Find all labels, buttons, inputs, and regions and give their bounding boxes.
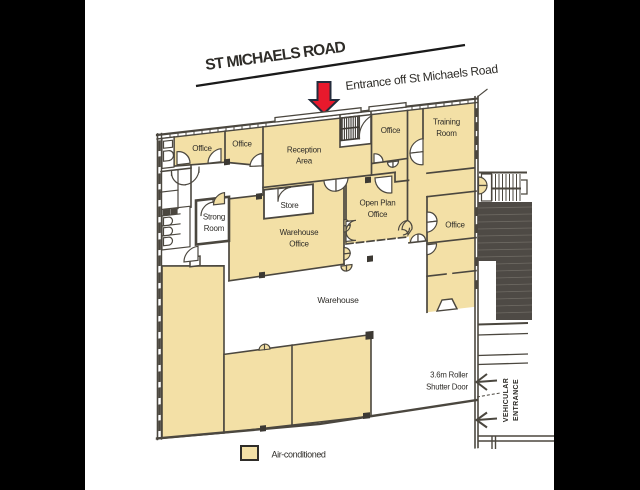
svg-text:Warehouse: Warehouse <box>317 295 359 305</box>
svg-text:Office: Office <box>381 126 401 135</box>
svg-text:Room: Room <box>436 129 457 138</box>
svg-text:Air-conditioned: Air-conditioned <box>272 450 326 460</box>
svg-text:Store: Store <box>280 201 299 210</box>
svg-text:Open Plan: Open Plan <box>359 199 395 208</box>
svg-text:Room: Room <box>204 224 225 233</box>
svg-text:Office: Office <box>192 144 212 153</box>
svg-text:ENTRANCE: ENTRANCE <box>513 379 520 421</box>
svg-text:3.6m Roller: 3.6m Roller <box>430 371 468 380</box>
svg-text:Office: Office <box>289 240 309 249</box>
svg-text:Shutter Door: Shutter Door <box>426 383 468 392</box>
svg-text:Warehouse: Warehouse <box>280 228 320 237</box>
svg-text:Area: Area <box>296 157 313 166</box>
svg-text:Office: Office <box>368 210 388 219</box>
svg-text:VEHICULAR: VEHICULAR <box>503 378 510 422</box>
svg-text:Training: Training <box>433 118 460 127</box>
svg-text:Reception: Reception <box>287 146 321 155</box>
svg-text:Strong: Strong <box>203 213 225 222</box>
svg-text:Office: Office <box>232 140 252 149</box>
svg-text:Office: Office <box>445 221 465 230</box>
